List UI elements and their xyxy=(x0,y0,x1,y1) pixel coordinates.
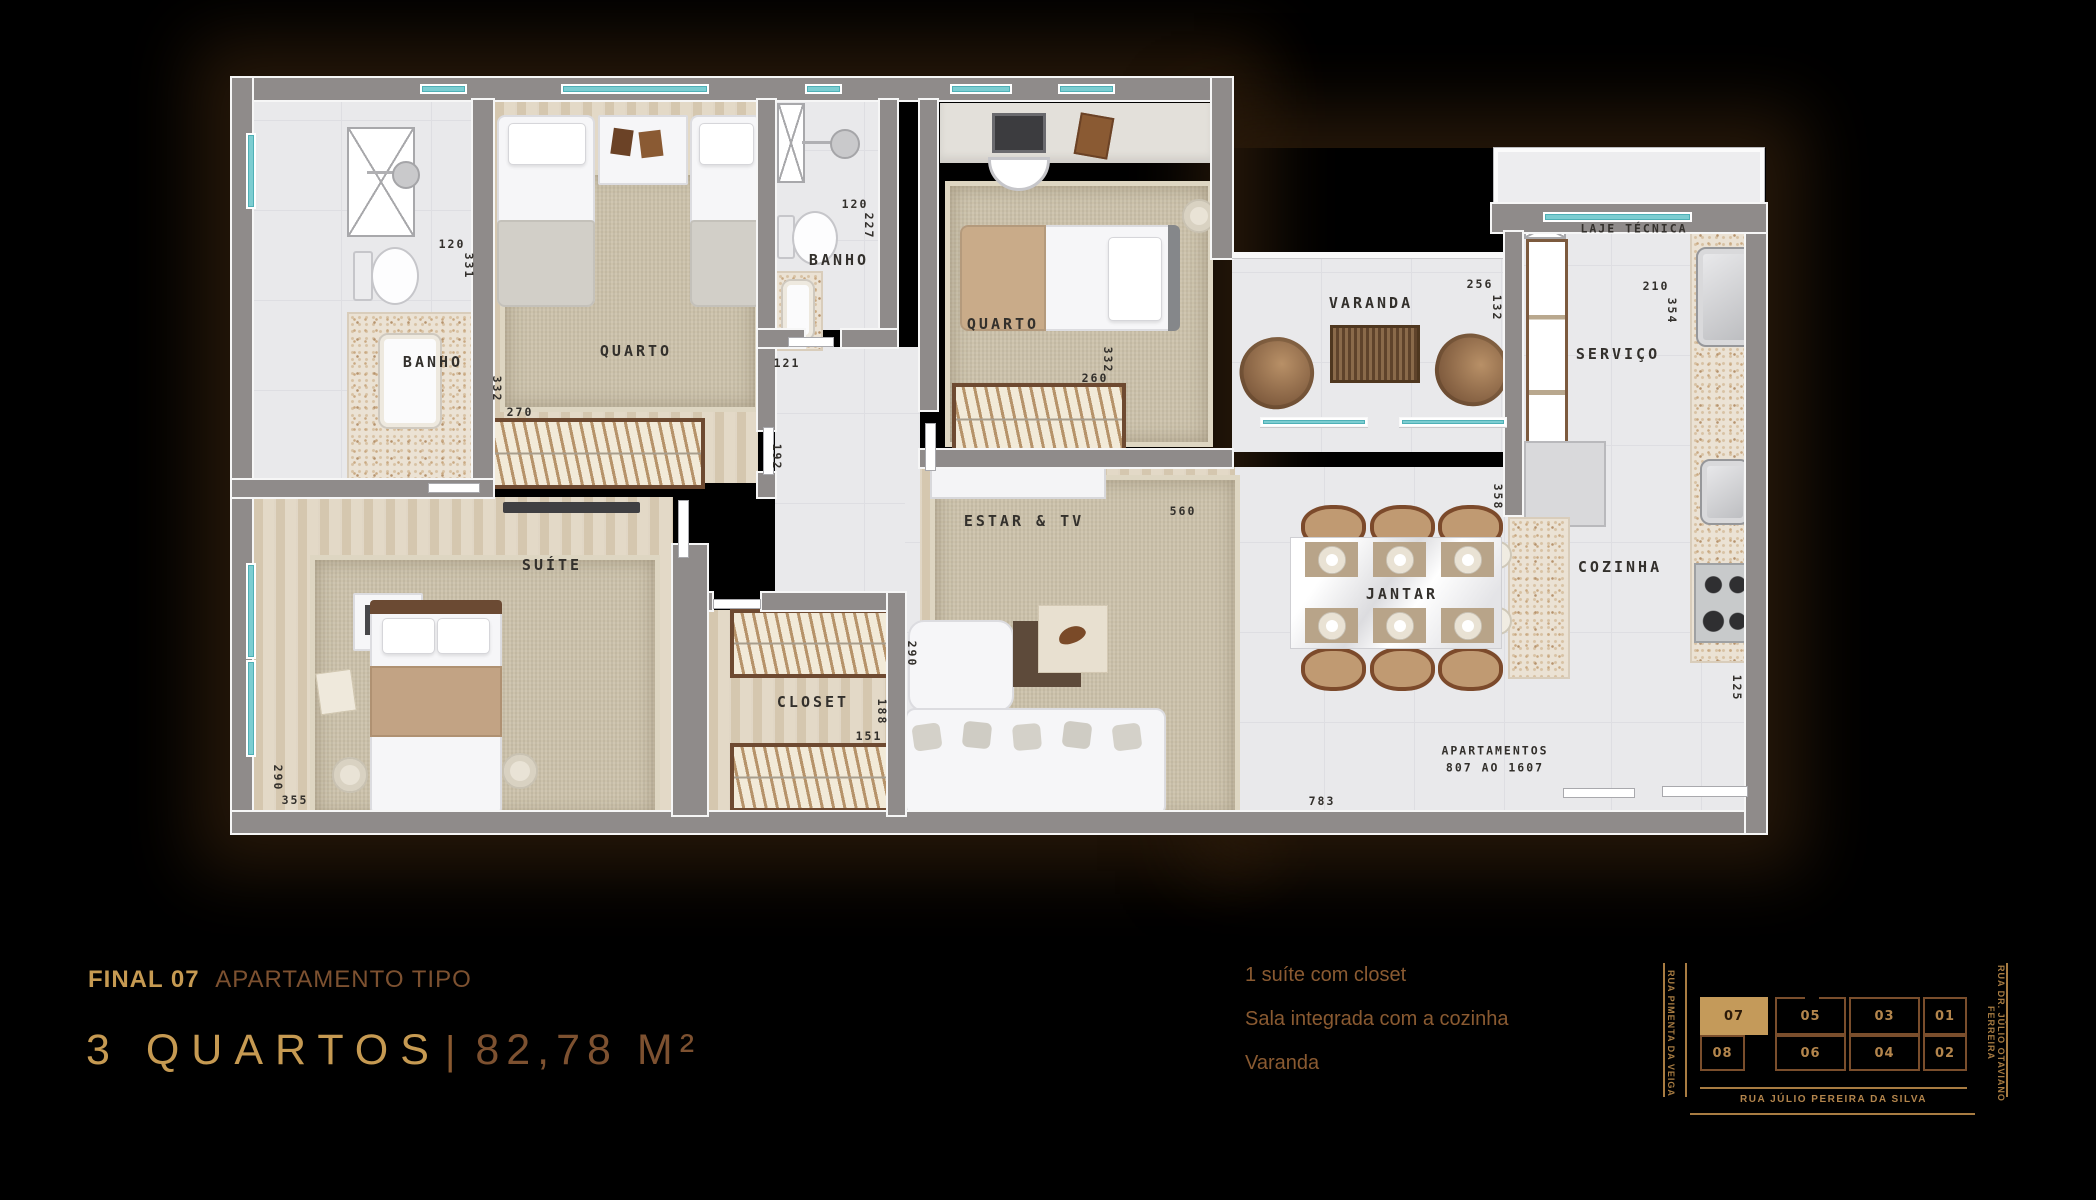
door-banho1 xyxy=(428,483,480,493)
window-servico-top xyxy=(1545,214,1690,220)
wall-quarto2-right xyxy=(1212,78,1232,258)
wardrobe-quarto1 xyxy=(490,418,705,489)
feature-item-2: Sala integrada com a cozinha xyxy=(1245,1004,1509,1048)
slider-glass-left xyxy=(1263,420,1365,424)
wall-banho2-bottom-b xyxy=(842,330,897,347)
door-quarto1 xyxy=(763,427,774,475)
dining-chair-5 xyxy=(1370,647,1435,691)
wall-servico-left xyxy=(1505,232,1522,515)
wall-banho2-right xyxy=(880,100,897,340)
minimap: RUA PIMENTA DA VEIGA RUA DR. JÚLIO OTAVI… xyxy=(1650,955,2096,1155)
dining-chair-6 xyxy=(1438,647,1503,691)
feature-item-1: 1 suíte com closet xyxy=(1245,960,1509,1004)
street-line-bottom-b xyxy=(1690,1113,1975,1115)
window-quarto2-top-a xyxy=(952,86,1010,92)
minimap-unit-02: 02 xyxy=(1923,1035,1967,1071)
street-line-right xyxy=(2006,963,2008,1097)
street-right-label: RUA DR. JÚLIO OTAVIANO FERREIRA xyxy=(1986,960,2006,1106)
minimap-notch xyxy=(1805,995,1819,1005)
sofa-estar xyxy=(905,708,1166,816)
street-line-bottom-a xyxy=(1700,1087,1967,1089)
window-banho1-top xyxy=(422,86,465,92)
bed-quarto1-left xyxy=(497,115,595,307)
notebook-quarto2 xyxy=(1074,112,1115,159)
minimap-building: 0705030108060402 xyxy=(1700,997,1967,1071)
toilet-tank-banho1 xyxy=(353,251,373,301)
laje-tecnica-area xyxy=(1494,148,1764,212)
bed-quarto1-right xyxy=(690,115,762,307)
window-banho2-top xyxy=(807,86,840,92)
headline-area: 82,78 M² xyxy=(475,1026,701,1075)
minimap-unit-04: 04 xyxy=(1849,1035,1920,1071)
bed-quarto2 xyxy=(960,225,1180,331)
street-bottom-label: RUA JÚLIO PEREIRA DA SILVA xyxy=(1700,1094,1967,1105)
minimap-unit-03: 03 xyxy=(1849,997,1920,1035)
door-entry-b xyxy=(1662,786,1748,797)
headline-separator: | xyxy=(445,1029,455,1074)
plate-1 xyxy=(1318,546,1346,574)
minimap-unit-08: 08 xyxy=(1700,1035,1745,1071)
plate-4 xyxy=(1318,612,1346,640)
window-suite-left-a xyxy=(248,565,254,657)
final-line: FINAL 07 APARTAMENTO TIPO xyxy=(88,966,472,994)
slat-table-varanda xyxy=(1330,325,1420,383)
varanda-parapet xyxy=(1232,252,1508,258)
slider-glass-right xyxy=(1402,420,1504,424)
island-cozinha xyxy=(1508,517,1570,679)
window-quarto1-top xyxy=(563,86,707,92)
wall-suite-right xyxy=(673,545,707,815)
laptop-quarto2 xyxy=(992,113,1046,153)
wall-closet-right xyxy=(888,593,905,815)
sideboard-estar xyxy=(930,467,1106,499)
bed-suite xyxy=(370,600,502,816)
deco-mat-suite xyxy=(315,669,356,716)
nightstand-suite-right xyxy=(502,753,538,789)
toilet-banho2 xyxy=(792,211,838,265)
dining-chair-4 xyxy=(1301,647,1366,691)
wall-quarto1-right-b xyxy=(758,473,775,497)
final-number: FINAL 07 xyxy=(88,966,200,993)
nightstand-suite-left xyxy=(332,757,368,793)
headline-rooms: 3 QUARTOS xyxy=(86,1026,441,1075)
sink-banho1 xyxy=(378,333,442,429)
minimap-unit-06: 06 xyxy=(1775,1035,1846,1071)
door-suite xyxy=(678,500,689,558)
street-line-left-outer xyxy=(1663,963,1665,1097)
toilet-banho1 xyxy=(371,247,419,305)
nightstand-quarto1 xyxy=(598,115,688,185)
plate-5 xyxy=(1386,612,1414,640)
tv-console-suite xyxy=(503,502,640,513)
headline: 3 QUARTOS | 82,78 M² xyxy=(86,1026,701,1075)
window-quarto2-top-b xyxy=(1060,86,1113,92)
ottoman-estar xyxy=(908,620,1014,712)
lamp-quarto2 xyxy=(1182,199,1216,233)
wall-quarto2-left xyxy=(920,100,937,410)
plate-2 xyxy=(1386,546,1414,574)
wall-closet-top-b xyxy=(762,593,905,610)
floor-plan xyxy=(232,75,1767,835)
appliance-servico xyxy=(1524,441,1606,527)
feature-item-3: Varanda xyxy=(1245,1048,1509,1092)
shower-arm xyxy=(367,171,395,174)
wall-quarto2-bottom xyxy=(920,450,1232,467)
shower-head2 xyxy=(830,129,860,159)
door-banho2 xyxy=(788,337,834,347)
sink-cozinha xyxy=(1700,459,1750,525)
wall-bottom xyxy=(232,812,1766,833)
shower-banho2 xyxy=(777,103,805,183)
wall-quarto1-right-a xyxy=(758,100,775,430)
door-quarto2 xyxy=(925,423,936,471)
wardrobe-quarto2 xyxy=(952,383,1126,456)
plate-3 xyxy=(1454,546,1482,574)
wall-banho1-right xyxy=(473,100,493,497)
wardrobe-closet-top xyxy=(730,609,898,678)
street-line-left-inner xyxy=(1685,963,1687,1097)
door-entry-a xyxy=(1563,788,1635,798)
floor-hall xyxy=(775,347,920,593)
shower-head xyxy=(392,161,420,189)
minimap-unit-01: 01 xyxy=(1923,997,1967,1035)
plate-6 xyxy=(1454,612,1482,640)
features-list: 1 suíte com closetSala integrada com a c… xyxy=(1245,960,1509,1092)
wall-right xyxy=(1746,212,1766,833)
wardrobe-closet-bottom xyxy=(730,743,898,812)
page-canvas: BANHOQUARTOBANHOQUARTOVARANDALAJE TÉCNIC… xyxy=(0,0,2096,1200)
window-banho1-left xyxy=(248,135,254,207)
minimap-unit-07: 07 xyxy=(1700,997,1768,1035)
door-closet xyxy=(713,599,761,609)
window-suite-left-b xyxy=(248,662,254,755)
final-type: APARTAMENTO TIPO xyxy=(215,966,472,993)
cabinet-servico xyxy=(1526,239,1568,473)
street-left-label: RUA PIMENTA DA VEIGA xyxy=(1666,963,1676,1103)
